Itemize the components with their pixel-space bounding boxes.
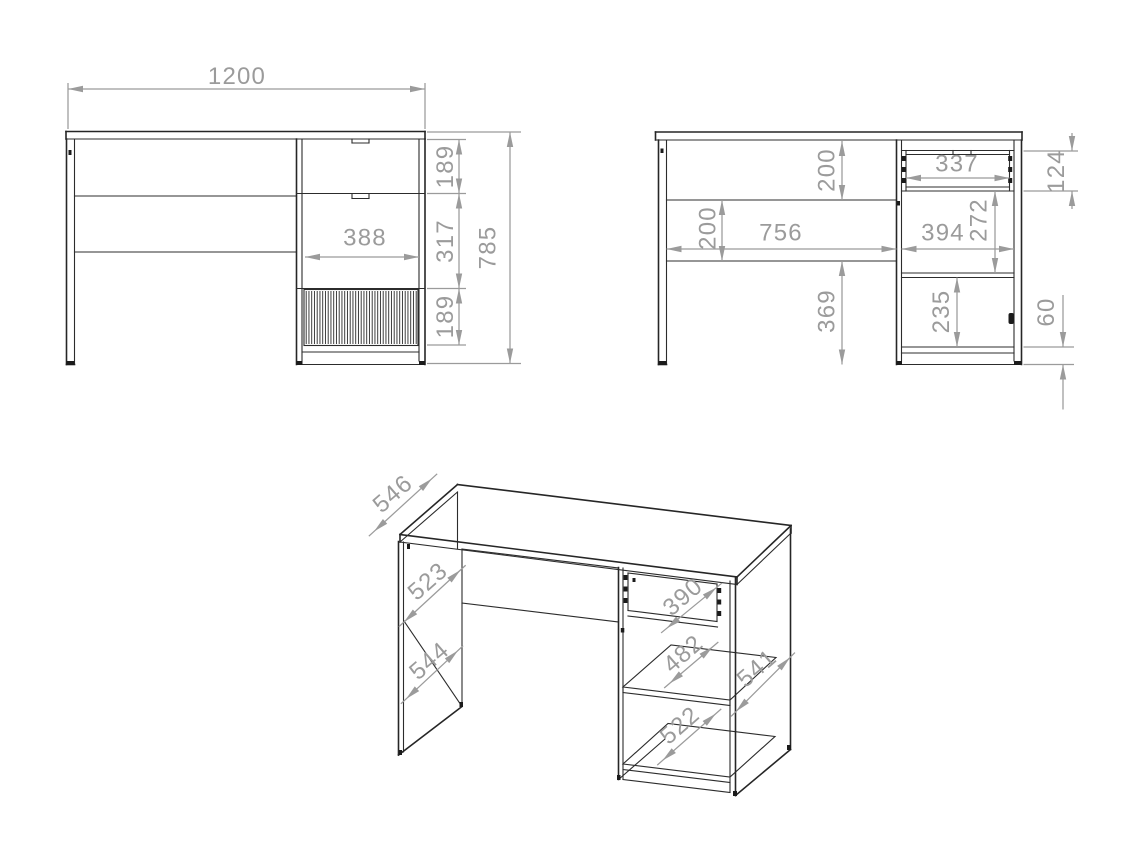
fitting-mark bbox=[897, 361, 903, 365]
fitting-mark bbox=[67, 361, 75, 365]
dimension-arrowhead bbox=[902, 246, 917, 252]
fitting-mark bbox=[69, 150, 72, 155]
dim-label-side-depth: 541 bbox=[732, 644, 783, 693]
fitting-mark bbox=[717, 600, 721, 605]
dimension-arrowhead bbox=[839, 261, 845, 276]
side-view: 20020075639433727212436923560 bbox=[656, 132, 1079, 410]
dim-label-door-opening: 235 bbox=[928, 290, 955, 334]
dimension-arrowhead bbox=[507, 132, 513, 147]
drawing-line bbox=[737, 533, 791, 585]
dim-label-shelf-depth: 482 bbox=[658, 629, 709, 678]
drawing-line bbox=[399, 707, 463, 756]
fitting-mark bbox=[661, 149, 664, 154]
isometric-view: 546523544390482522541 bbox=[368, 469, 795, 796]
drawing-line bbox=[628, 573, 717, 584]
fitting-mark bbox=[624, 587, 628, 592]
fitting-mark bbox=[717, 611, 721, 616]
fitting-mark bbox=[297, 361, 303, 365]
fitting-mark bbox=[733, 791, 737, 796]
fitting-mark bbox=[897, 201, 900, 206]
fitting-mark bbox=[902, 156, 906, 161]
fitting-mark bbox=[407, 544, 410, 549]
fitting-mark bbox=[633, 578, 636, 582]
dimension-arrowhead bbox=[667, 246, 682, 252]
dimension-arrowhead bbox=[404, 254, 419, 260]
dim-label-bottom-shelf-depth: 522 bbox=[655, 701, 706, 750]
dim-label-drawer-width: 388 bbox=[343, 225, 387, 252]
fitting-mark bbox=[1014, 361, 1022, 365]
fitting-mark bbox=[1008, 178, 1012, 183]
fitting-mark bbox=[399, 750, 402, 755]
drawing-line bbox=[462, 603, 619, 622]
dim-label-panel-depth: 544 bbox=[404, 636, 455, 685]
panel-face bbox=[623, 724, 775, 778]
fitting-mark bbox=[1008, 167, 1012, 172]
hinge-mark bbox=[1009, 313, 1015, 324]
drawing-line bbox=[400, 535, 737, 578]
dimension-arrowhead bbox=[882, 246, 897, 252]
page: 1200189317189785388200200756394337272124… bbox=[0, 0, 1137, 853]
dim-label-plinth: 60 bbox=[1033, 297, 1060, 326]
dimension-arrowhead bbox=[305, 254, 320, 260]
dimension-arrowhead bbox=[992, 191, 998, 206]
dimension-arrowhead bbox=[1060, 332, 1066, 347]
fitting-mark bbox=[419, 361, 425, 365]
dim-label-top-depth: 546 bbox=[368, 469, 419, 518]
dim-label-knee-width: 756 bbox=[759, 220, 803, 247]
drawing-line bbox=[623, 693, 730, 706]
fluted-flap bbox=[304, 290, 418, 346]
dim-label-drawer-top: 189 bbox=[432, 145, 459, 189]
drawing-line bbox=[736, 750, 791, 796]
fitting-mark bbox=[902, 167, 906, 172]
dim-label-middle: 317 bbox=[432, 219, 459, 263]
dimension-arrowhead bbox=[1060, 365, 1066, 380]
dim-label-apron: 200 bbox=[695, 206, 722, 250]
dim-label-inner-depth: 523 bbox=[403, 557, 454, 606]
dimension-arrowhead bbox=[995, 175, 1010, 181]
technical-drawing: 1200189317189785388200200756394337272124… bbox=[0, 0, 1137, 853]
dim-label-height: 785 bbox=[475, 226, 502, 270]
dim-label-top-clearance: 200 bbox=[814, 148, 841, 192]
dim-label-drawer-to-shelf: 272 bbox=[966, 198, 993, 242]
dim-label-width: 1200 bbox=[208, 63, 266, 90]
dimension-arrowhead bbox=[992, 258, 998, 273]
technical-drawing-canvas: 1200189317189785388200200756394337272124… bbox=[0, 0, 1137, 853]
dim-label-drawer-height: 124 bbox=[1043, 149, 1070, 193]
drawing-line bbox=[737, 526, 791, 578]
fitting-mark bbox=[717, 588, 721, 593]
dimension-arrowhead bbox=[906, 175, 921, 181]
fitting-mark bbox=[659, 361, 667, 365]
drawing-line bbox=[623, 780, 730, 793]
fitting-mark bbox=[624, 575, 628, 580]
dimension-arrowhead bbox=[68, 86, 83, 92]
drawing-line bbox=[623, 770, 730, 783]
dimension-arrowhead bbox=[1069, 136, 1075, 151]
fitting-mark bbox=[787, 745, 791, 750]
dimension-arrowhead bbox=[507, 349, 513, 364]
fitting-mark bbox=[460, 702, 464, 707]
drawing-line bbox=[458, 485, 792, 526]
fitting-mark bbox=[617, 775, 621, 780]
dimension-arrowhead bbox=[999, 246, 1014, 252]
dim-label-pedestal-inner-width: 394 bbox=[921, 220, 965, 247]
fitting-mark bbox=[621, 628, 625, 633]
dim-label-under-apron: 369 bbox=[814, 289, 841, 333]
dimension-arrowhead bbox=[456, 274, 462, 289]
dimension-arrowhead bbox=[410, 86, 425, 92]
side-view-dimensions: 20020075639433727212436923560 bbox=[667, 133, 1079, 410]
dimension-arrowhead bbox=[839, 350, 845, 365]
fitting-mark bbox=[624, 598, 628, 603]
fitting-mark bbox=[1008, 156, 1012, 161]
dimension-arrowhead bbox=[456, 194, 462, 209]
front-view-dimensions: 1200189317189785388 bbox=[68, 63, 521, 364]
fitting-mark bbox=[902, 178, 906, 183]
dim-label-flap: 189 bbox=[432, 295, 459, 339]
dim-label-drawer-inner-width: 337 bbox=[935, 151, 979, 178]
front-view: 1200189317189785388 bbox=[66, 63, 521, 365]
